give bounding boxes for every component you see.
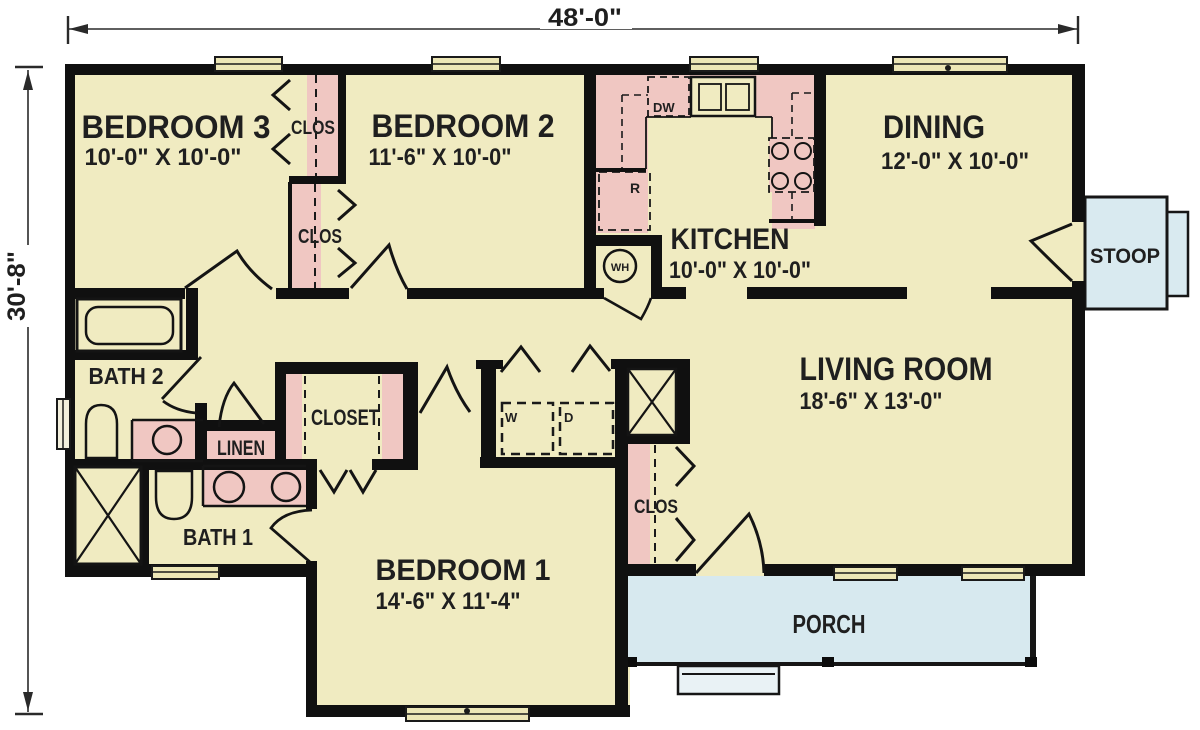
- svg-text:DINING: DINING: [883, 109, 985, 145]
- svg-text:BEDROOM 2: BEDROOM 2: [372, 108, 555, 144]
- svg-text:12'-0" X 10'-0": 12'-0" X 10'-0": [881, 148, 1029, 175]
- svg-text:LINEN: LINEN: [217, 437, 265, 460]
- svg-text:14'-6" X 11'-4": 14'-6" X 11'-4": [376, 588, 521, 615]
- svg-text:CLOSET: CLOSET: [311, 405, 379, 430]
- svg-text:R: R: [630, 180, 640, 196]
- svg-text:BEDROOM 1: BEDROOM 1: [376, 554, 551, 587]
- svg-text:STOOP: STOOP: [1090, 245, 1160, 268]
- svg-text:11'-6" X 10'-0": 11'-6" X 10'-0": [369, 144, 512, 171]
- svg-text:D: D: [564, 410, 573, 425]
- svg-text:CLOS: CLOS: [634, 497, 678, 518]
- svg-text:W: W: [505, 410, 518, 425]
- svg-text:BATH 2: BATH 2: [89, 363, 164, 389]
- svg-text:PORCH: PORCH: [793, 609, 866, 639]
- svg-text:CLOS: CLOS: [291, 118, 335, 139]
- svg-text:48'-0": 48'-0": [548, 4, 622, 32]
- svg-text:10'-0" X 10'-0": 10'-0" X 10'-0": [85, 144, 242, 171]
- svg-text:BATH 1: BATH 1: [183, 524, 253, 550]
- svg-text:LIVING ROOM: LIVING ROOM: [800, 351, 993, 387]
- svg-text:18'-6" X 13'-0": 18'-6" X 13'-0": [800, 388, 943, 415]
- svg-text:WH: WH: [611, 262, 629, 274]
- svg-text:10'-0" X 10'-0": 10'-0" X 10'-0": [669, 257, 811, 284]
- svg-text:30'-8": 30'-8": [3, 251, 31, 321]
- svg-text:KITCHEN: KITCHEN: [671, 223, 790, 256]
- svg-text:CLOS: CLOS: [298, 226, 342, 248]
- svg-text:BEDROOM 3: BEDROOM 3: [82, 109, 271, 145]
- svg-text:DW: DW: [653, 100, 675, 115]
